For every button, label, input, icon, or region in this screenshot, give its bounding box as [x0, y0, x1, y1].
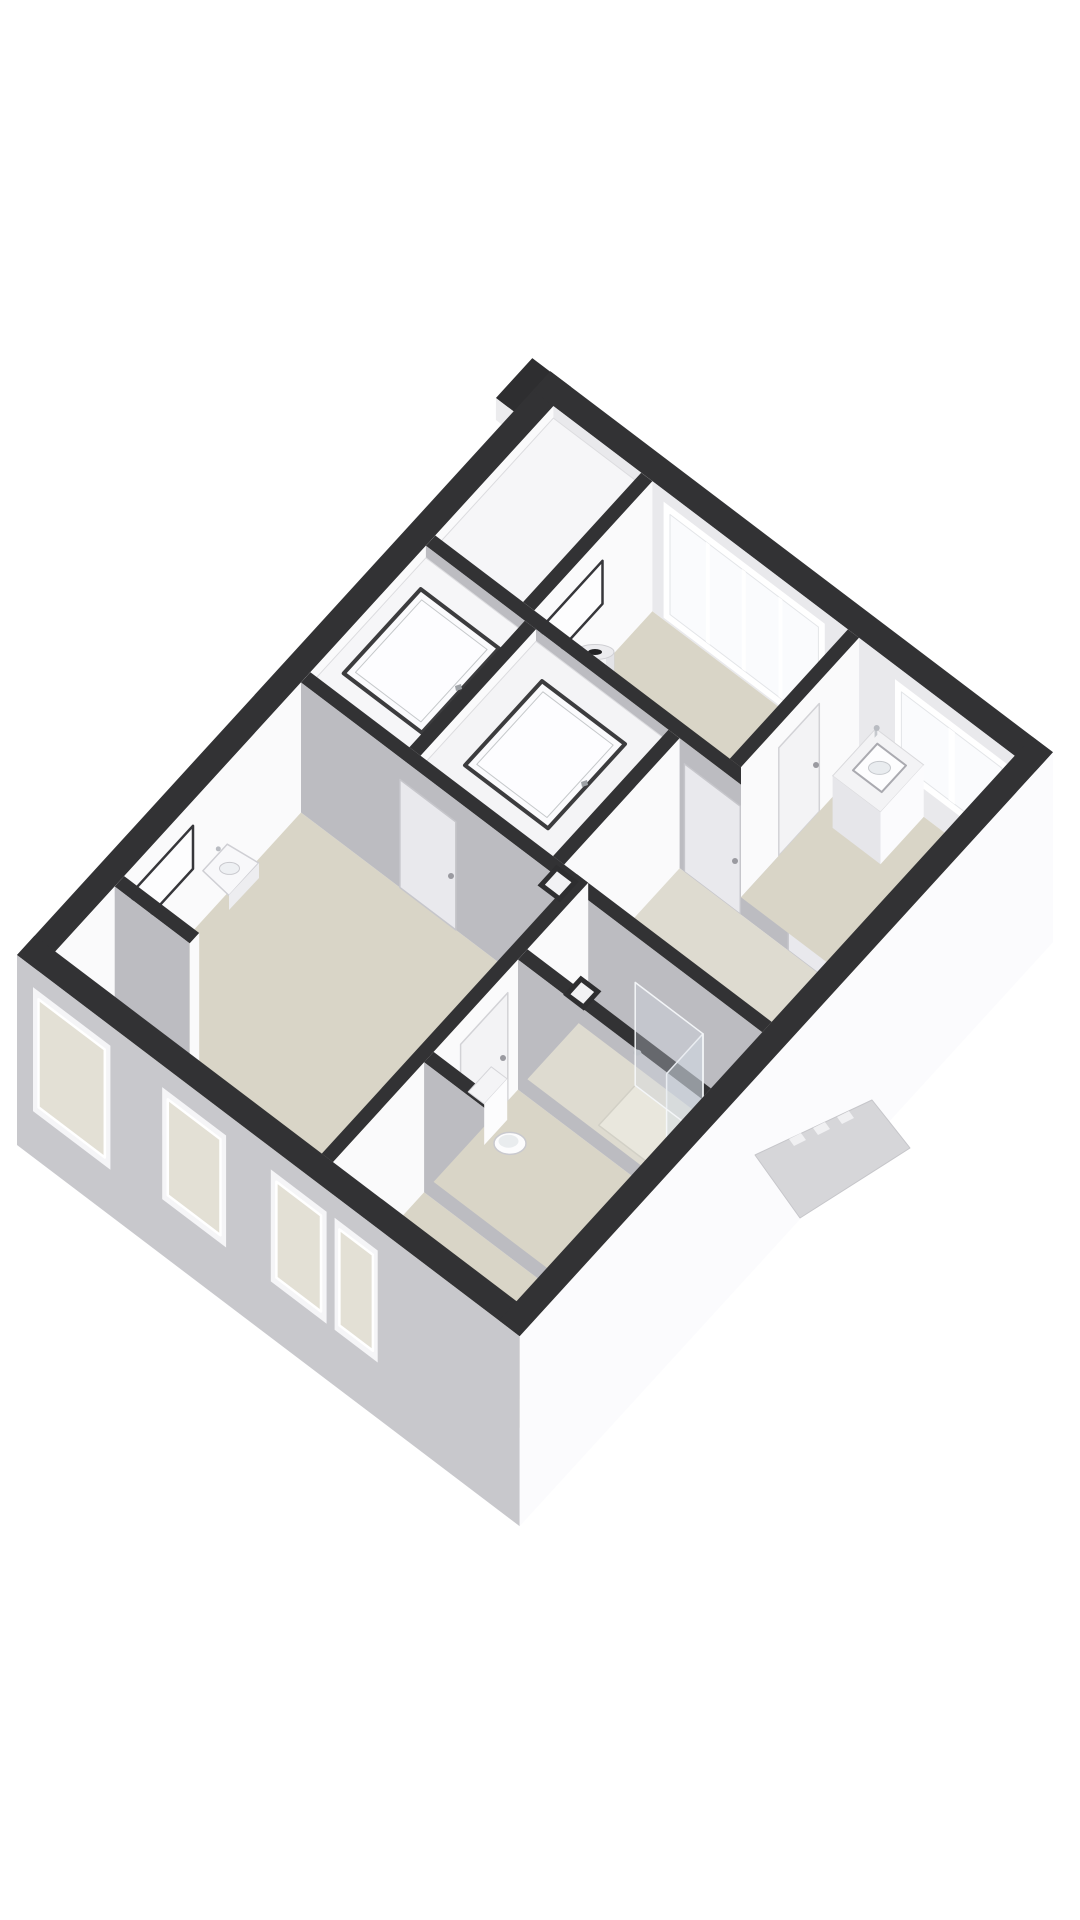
door-bedroom-handle [448, 873, 454, 879]
window-mullion-bathroom [949, 728, 955, 805]
toilet-seat [499, 1135, 519, 1148]
floorplan-page [0, 0, 1080, 1920]
door-livingroom-handle [732, 858, 738, 864]
bathroom-faucet [874, 725, 880, 731]
bedroom-faucet [216, 846, 221, 851]
door-bathroom-handle [813, 762, 819, 768]
floorplan-3d-svg [0, 0, 1080, 1920]
window-mullion-3 [779, 597, 783, 700]
window-mullion-2 [742, 569, 746, 672]
wall-end-bedroom-stub [190, 933, 200, 1073]
door-wc-handle [500, 1055, 506, 1061]
bathroom-sink-bowl [869, 761, 891, 774]
window-mullion-1 [706, 542, 710, 645]
bedroom-sink-bowl [220, 862, 240, 874]
